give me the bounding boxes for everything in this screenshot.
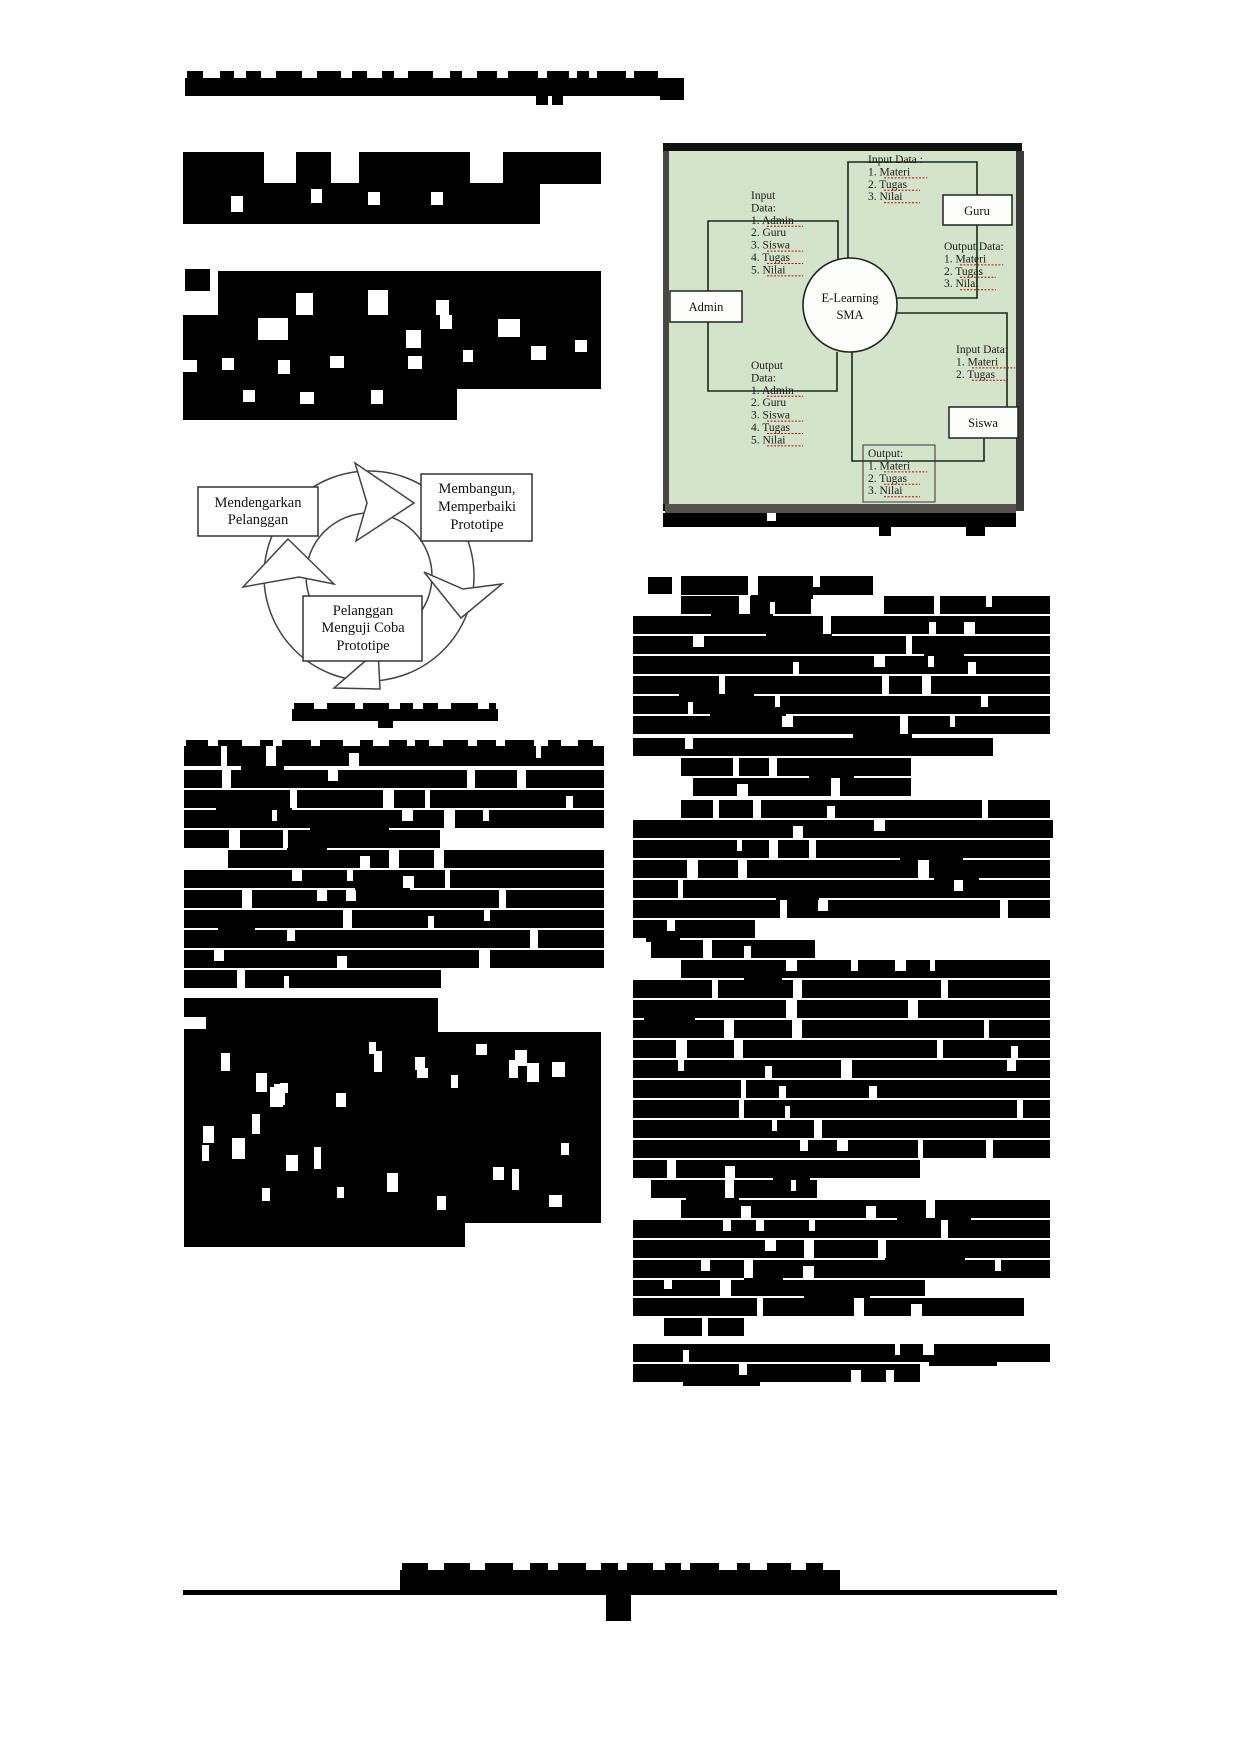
svg-text:2. Tugas: 2. Tugas: [868, 473, 908, 485]
svg-text:2. Tugas: 2. Tugas: [868, 179, 908, 191]
svg-text:Guru: Guru: [964, 204, 990, 218]
svg-text:1. Materi: 1. Materi: [868, 166, 910, 178]
svg-text:1. Materi: 1. Materi: [956, 356, 998, 368]
svg-text:4. Tugas: 4. Tugas: [751, 252, 791, 264]
svg-text:3. Siswa: 3. Siswa: [751, 240, 790, 252]
svg-text:Input: Input: [751, 190, 776, 202]
svg-text:Mendengarkan: Mendengarkan: [215, 495, 303, 511]
svg-text:1. Materi: 1. Materi: [868, 460, 910, 472]
svg-text:3. Nilai: 3. Nilai: [868, 191, 903, 203]
svg-text:Input Data:: Input Data:: [956, 344, 1008, 356]
svg-text:Memperbaiki: Memperbaiki: [438, 499, 516, 515]
svg-text:5. Nilai: 5. Nilai: [751, 264, 786, 276]
svg-text:Pelanggan: Pelanggan: [333, 603, 394, 619]
svg-text:2. Tugas: 2. Tugas: [944, 266, 984, 278]
svg-text:E-Learning: E-Learning: [822, 291, 880, 305]
svg-text:1. Admin: 1. Admin: [751, 385, 794, 397]
svg-text:3. Siswa: 3. Siswa: [751, 410, 790, 422]
svg-text:Pelanggan: Pelanggan: [228, 512, 289, 528]
svg-text:Output:: Output:: [868, 448, 903, 460]
svg-text:Output Data:: Output Data:: [944, 241, 1004, 253]
svg-text:1. Materi: 1. Materi: [944, 253, 986, 265]
svg-text:Siswa: Siswa: [968, 416, 998, 430]
svg-text:Prototipe: Prototipe: [450, 517, 503, 533]
svg-text:2. Guru: 2. Guru: [751, 227, 786, 239]
svg-text:Input Data :: Input Data :: [868, 154, 923, 166]
svg-text:Admin: Admin: [689, 300, 724, 314]
svg-text:1. Admin: 1. Admin: [751, 215, 794, 227]
svg-text:Menguji Coba: Menguji Coba: [321, 620, 405, 636]
svg-text:Data:: Data:: [751, 372, 776, 384]
svg-text:Membangun,: Membangun,: [439, 481, 516, 497]
svg-text:3. Nilai: 3. Nilai: [868, 485, 903, 497]
svg-text:2. Tugas: 2. Tugas: [956, 369, 996, 381]
svg-text:Output: Output: [751, 360, 784, 372]
svg-text:5. Nilai: 5. Nilai: [751, 434, 786, 446]
svg-text:2. Guru: 2. Guru: [751, 397, 786, 409]
svg-text:3. Nilai: 3. Nilai: [944, 278, 979, 290]
svg-text:Data:: Data:: [751, 202, 776, 214]
svg-text:Prototipe: Prototipe: [336, 638, 389, 654]
svg-text:4. Tugas: 4. Tugas: [751, 422, 791, 434]
svg-text:SMA: SMA: [836, 308, 863, 322]
